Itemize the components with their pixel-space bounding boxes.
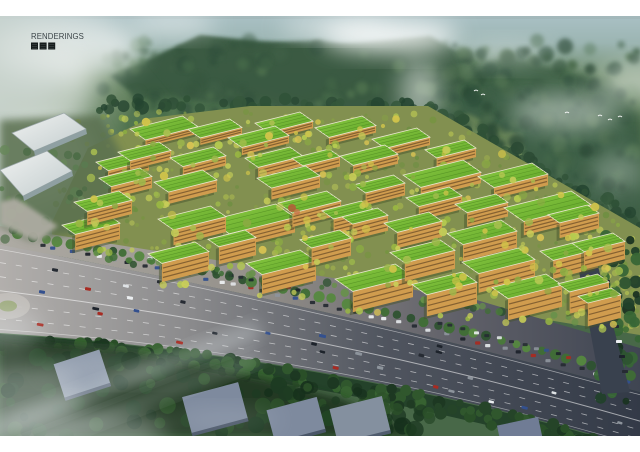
- svg-text:RENDERINGS: RENDERINGS: [31, 32, 84, 41]
